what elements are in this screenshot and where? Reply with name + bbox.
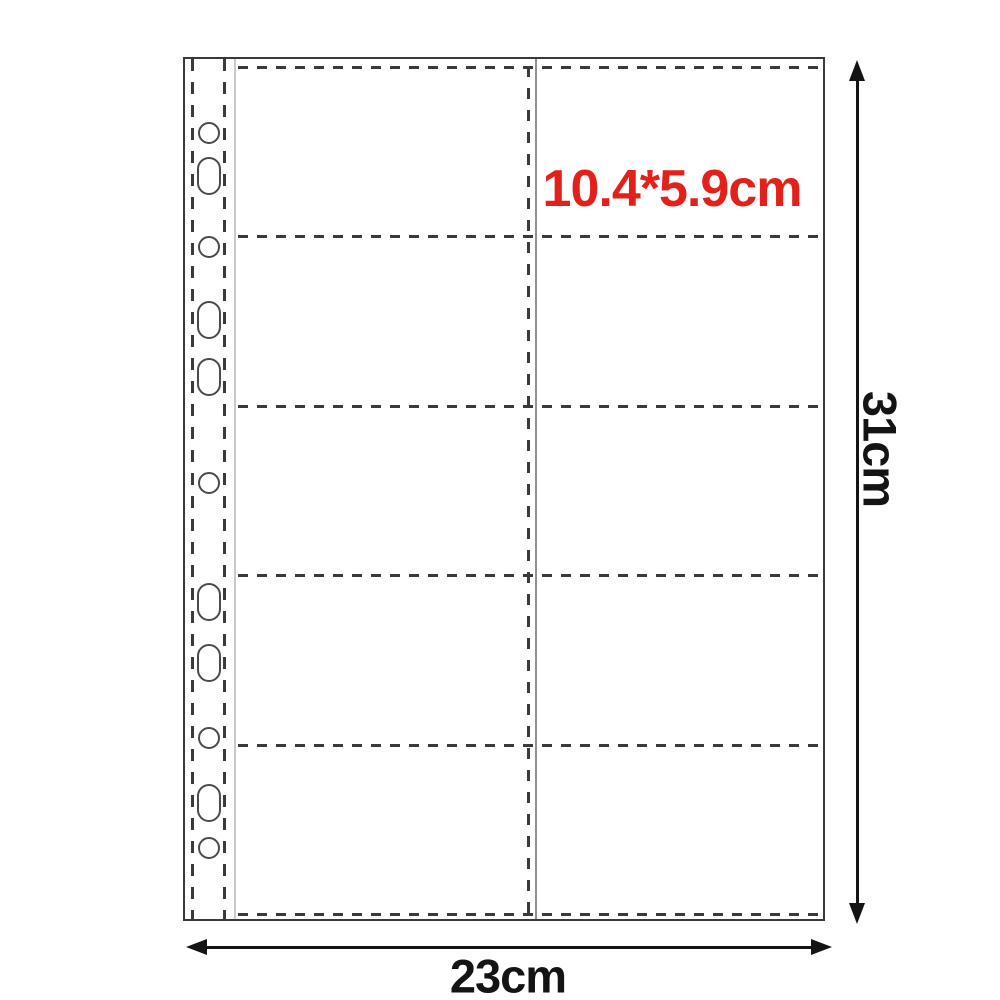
pocket-column-seam-line bbox=[535, 59, 537, 919]
pocket-column-divider-dashed bbox=[527, 66, 530, 913]
binder-hole-oblong bbox=[197, 583, 221, 621]
arrowhead-down-icon bbox=[849, 903, 865, 924]
binder-hole-circle bbox=[198, 236, 220, 258]
binder-hole-circle bbox=[198, 837, 220, 859]
strip-stitch-line-left bbox=[191, 59, 194, 919]
page-width-label: 23cm bbox=[450, 949, 566, 1000]
binder-hole-circle bbox=[198, 727, 220, 749]
binder-hole-oblong bbox=[197, 358, 221, 396]
pocket-size-label: 10.4*5.9cm bbox=[543, 159, 802, 219]
pocket-row-divider bbox=[238, 66, 823, 69]
binder-hole-circle bbox=[198, 472, 220, 494]
binder-hole-oblong bbox=[197, 157, 221, 195]
binder-hole-oblong bbox=[197, 301, 221, 339]
binder-hole-oblong bbox=[197, 784, 221, 822]
pocket-row-divider bbox=[238, 744, 823, 747]
pocket-row-divider bbox=[238, 913, 823, 916]
binder-hole-oblong bbox=[197, 644, 221, 682]
arrowhead-up-icon bbox=[849, 60, 865, 81]
strip-stitch-line-right bbox=[223, 59, 226, 919]
page-height-label: 31cm bbox=[853, 391, 908, 507]
pocket-row-divider bbox=[238, 574, 823, 577]
strip-edge-line bbox=[234, 59, 236, 919]
pocket-row-divider bbox=[238, 235, 823, 238]
binder-hole-circle bbox=[198, 122, 220, 144]
arrowhead-right-icon bbox=[811, 939, 832, 955]
pocket-row-divider bbox=[238, 405, 823, 408]
arrowhead-left-icon bbox=[186, 939, 207, 955]
product-diagram: 10.4*5.9cm 31cm 23cm bbox=[0, 0, 1000, 1000]
